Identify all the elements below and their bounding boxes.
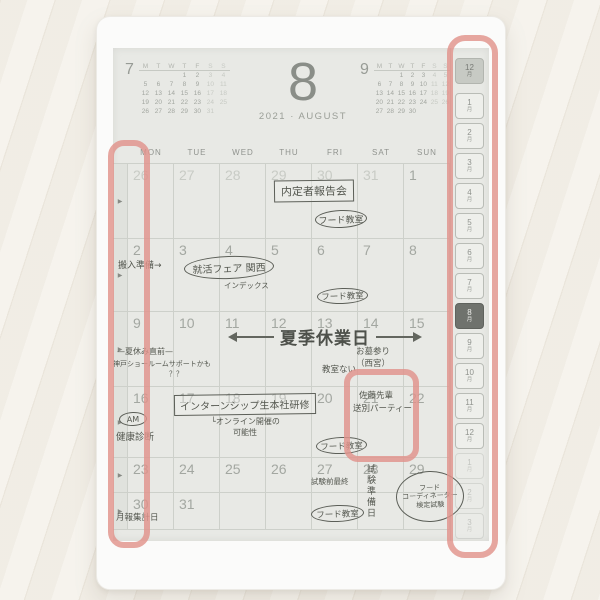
mini-date: 10 (204, 81, 217, 90)
mini-date: 1 (178, 72, 191, 81)
mini-day-letter: S (217, 63, 230, 71)
mini-date: 8 (396, 81, 407, 90)
mini-date: 27 (152, 108, 165, 117)
weekday-label: SAT (358, 148, 404, 157)
date-cell[interactable]: 7 (358, 239, 404, 312)
calendar-screen: 7 MTWTFSS1234567891011121314151617181920… (113, 48, 489, 541)
mini-date: 21 (165, 99, 178, 108)
weekday-label: FRI (312, 148, 358, 157)
date-number: 7 (363, 242, 403, 258)
date-number: 5 (271, 242, 311, 258)
mini-day-letter: F (418, 63, 429, 71)
mini-date: 26 (139, 108, 152, 117)
mini-date: 6 (152, 81, 165, 90)
mini-date: 3 (418, 72, 429, 81)
mini-date: 22 (178, 99, 191, 108)
mini-day-letter: T (152, 63, 165, 71)
mini-date: 17 (204, 90, 217, 99)
weekday-label: THU (266, 148, 312, 157)
mini-date: 11 (217, 81, 230, 90)
mini-date: 20 (152, 99, 165, 108)
mini-calendar-previous-month: 7 MTWTFSS1234567891011121314151617181920… (125, 63, 230, 117)
month-name-text: AUGUST (298, 111, 347, 122)
mini-date: 13 (152, 90, 165, 99)
date-number: 28 (225, 167, 265, 183)
mini-date (418, 108, 429, 117)
online-line2: 可能性 (233, 428, 257, 437)
mini-date: 22 (396, 99, 407, 108)
mini-date: 18 (217, 90, 230, 99)
mini-date: 19 (139, 99, 152, 108)
mini-day-letter: T (385, 63, 396, 71)
note-exam-prep-day: 試験準備日 (364, 464, 377, 526)
date-number: 31 (179, 496, 219, 512)
mini-date: 5 (139, 81, 152, 90)
mini-calendar-grid-prev: MTWTFSS123456789101112131415161718192021… (139, 63, 230, 117)
photo-scene: 7 MTWTFSS1234567891011121314151617181920… (0, 0, 600, 600)
mini-date: 1 (396, 72, 407, 81)
dot-separator: · (290, 111, 295, 122)
mini-day-letter: T (178, 63, 191, 71)
mini-date: 9 (407, 81, 418, 90)
mini-date: 7 (385, 81, 396, 90)
note-summer-holiday: 夏季休業日 (230, 324, 420, 349)
mini-date: 27 (374, 108, 385, 117)
week-row: ▶2345678 (113, 239, 450, 312)
mini-date: 30 (407, 108, 418, 117)
mini-date (165, 72, 178, 81)
mini-date: 4 (429, 72, 440, 81)
mini-date: 8 (178, 81, 191, 90)
mini-day-letter: M (139, 63, 152, 71)
mini-month-label-prev: 7 (125, 63, 134, 77)
mini-day-letter: W (165, 63, 178, 71)
mini-date: 3 (204, 72, 217, 81)
mini-date (385, 72, 396, 81)
mini-date: 13 (374, 90, 385, 99)
mini-date: 4 (217, 72, 230, 81)
note-internship-training: インターンシップ生本社研修 (174, 393, 316, 416)
date-number: 1 (409, 167, 449, 183)
annotation-box-left-week-column (108, 140, 150, 548)
date-number: 27 (179, 167, 219, 183)
date-cell[interactable]: 1 (404, 164, 450, 239)
month-title-block: 8 2021 · AUGUST (233, 54, 373, 122)
mini-date (429, 108, 440, 117)
weekday-label: TUE (174, 148, 220, 157)
date-number: 27 (317, 461, 357, 477)
mini-date: 18 (429, 90, 440, 99)
mini-date: 16 (407, 90, 418, 99)
note-final-before-exam: 試験前最終 (311, 476, 349, 487)
mini-date: 14 (385, 90, 396, 99)
mini-day-letter: M (374, 63, 385, 71)
mini-date: 31 (204, 108, 217, 117)
mini-date: 17 (418, 90, 429, 99)
date-cell[interactable]: 26 (266, 458, 312, 493)
note-online-possibility: └オンライン開催の 可能性 (211, 416, 280, 438)
online-line1: └オンライン開催の (211, 417, 280, 426)
note-index: インデックス (224, 280, 269, 291)
mini-date: 25 (217, 99, 230, 108)
note-offer-holders-briefing: 内定者報告会 (274, 179, 354, 202)
big-month-number: 8 (233, 54, 373, 110)
date-number: 31 (363, 167, 403, 183)
date-number: 24 (179, 461, 219, 477)
year-month-line: 2021 · AUGUST (233, 111, 373, 122)
mini-date: 15 (178, 90, 191, 99)
mini-date: 24 (204, 99, 217, 108)
mini-date (217, 108, 230, 117)
date-cell[interactable]: 27 (174, 164, 220, 239)
mini-date: 12 (139, 90, 152, 99)
date-number: 10 (179, 315, 219, 331)
mini-date: 2 (191, 72, 204, 81)
mini-date: 28 (385, 108, 396, 117)
annotation-box-august-21-cell (344, 369, 419, 462)
mini-date: 29 (178, 108, 191, 117)
mini-calendar-grid-next: MTWTFSS123456789101112131415161718192021… (374, 63, 451, 117)
mini-date: 7 (165, 81, 178, 90)
mini-date: 28 (165, 108, 178, 117)
mini-date: 11 (429, 81, 440, 90)
mini-date: 23 (407, 99, 418, 108)
mini-date: 10 (418, 81, 429, 90)
weekday-label: SUN (404, 148, 450, 157)
mini-day-letter: S (429, 63, 440, 71)
mini-date (139, 72, 152, 81)
mini-date: 14 (165, 90, 178, 99)
date-number: 6 (317, 242, 357, 258)
date-number: 26 (271, 461, 311, 477)
date-number: 3 (179, 242, 219, 258)
weekday-label: WED (220, 148, 266, 157)
date-cell[interactable]: 31 (358, 164, 404, 239)
grave-line2: （西宮） (356, 359, 390, 369)
mini-date: 29 (396, 108, 407, 117)
year-text: 2021 (259, 111, 286, 122)
exam-line3: 検定試験 (416, 500, 444, 509)
mini-day-letter: F (191, 63, 204, 71)
mini-date: 21 (385, 99, 396, 108)
grave-line1: お墓参り (356, 347, 390, 357)
arrow-left-icon (230, 336, 274, 338)
date-cell[interactable] (220, 493, 266, 530)
date-cell[interactable]: 8 (404, 239, 450, 312)
date-cell[interactable]: 24 (174, 458, 220, 493)
date-cell[interactable]: 5 (266, 239, 312, 312)
mini-day-letter: W (396, 63, 407, 71)
mini-date: 25 (429, 99, 440, 108)
arrow-right-icon (376, 336, 420, 338)
mini-date: 15 (396, 90, 407, 99)
date-cell[interactable]: 31 (174, 493, 220, 530)
mini-date: 24 (418, 99, 429, 108)
mini-date (152, 72, 165, 81)
weekday-header-row: MONTUEWEDTHUFRISATSUN (128, 148, 450, 157)
date-number: 8 (409, 242, 449, 258)
date-number: 25 (225, 461, 265, 477)
mini-date: 6 (374, 81, 385, 90)
mini-date: 23 (191, 99, 204, 108)
note-grave-visit: お墓参り （西宮） (356, 346, 390, 370)
date-cell[interactable]: 25 (220, 458, 266, 493)
mini-date: 20 (374, 99, 385, 108)
mini-date: 16 (191, 90, 204, 99)
date-cell[interactable] (266, 493, 312, 530)
mini-date: 30 (191, 108, 204, 117)
annotation-box-month-tab-strip (447, 35, 498, 558)
mini-month-label-next: 9 (360, 63, 369, 77)
date-cell[interactable]: 28 (220, 164, 266, 239)
mini-day-letter: T (407, 63, 418, 71)
mini-date (374, 72, 385, 81)
showroom-line2: ？？ (169, 370, 183, 378)
mini-calendar-next-month: 9 MTWTFSS1234567891011121314151617181920… (360, 63, 451, 117)
mini-day-letter: S (204, 63, 217, 71)
mini-date: 2 (407, 72, 418, 81)
mini-date: 9 (191, 81, 204, 90)
